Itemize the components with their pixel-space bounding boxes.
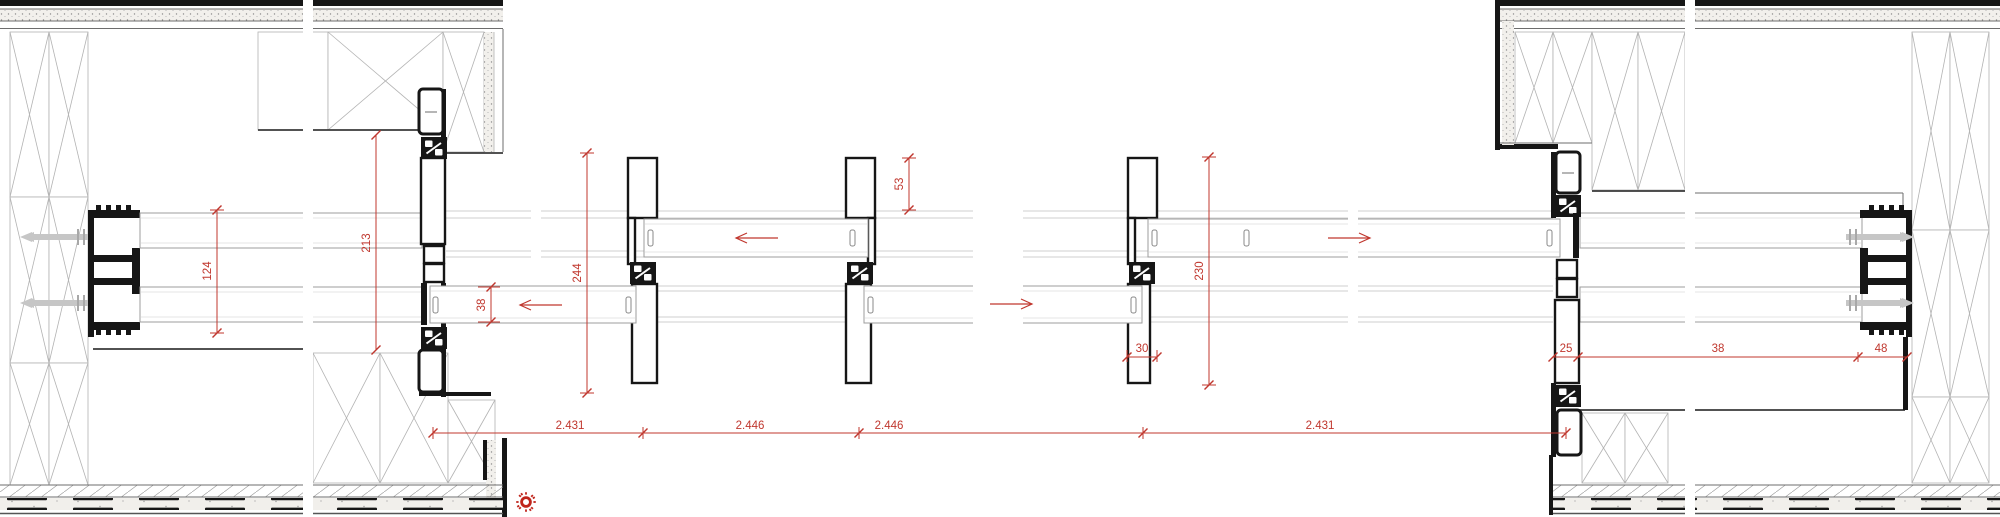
dimension-230: 230 bbox=[1194, 153, 1216, 390]
wall-upper-left bbox=[258, 29, 503, 153]
dim-label-213: 213 bbox=[361, 233, 373, 252]
sun-icon bbox=[516, 492, 536, 512]
section-break-right bbox=[1685, 0, 1695, 517]
fixing-screw-icon bbox=[1846, 295, 1914, 311]
dim-label-244: 244 bbox=[572, 263, 584, 283]
dim-label-48: 48 bbox=[1875, 343, 1888, 355]
chain-label-2: 2.446 bbox=[736, 420, 765, 432]
chain-label-1: 2.431 bbox=[556, 420, 585, 432]
dimension-chain-right: 25 38 48 bbox=[1549, 343, 1912, 362]
dim-label-53: 53 bbox=[894, 178, 906, 191]
fixed-glass-left bbox=[140, 213, 422, 322]
fixing-screw-icon bbox=[1846, 229, 1914, 245]
dimension-244: 244 bbox=[572, 149, 594, 398]
dimension-53: 53 bbox=[894, 154, 916, 215]
mullion-right bbox=[1551, 152, 1581, 457]
section-break-left bbox=[303, 0, 313, 517]
drawing-canvas: 124 213 38 244 53 230 30 bbox=[0, 0, 2000, 517]
dim-label-230: 230 bbox=[1194, 261, 1206, 280]
ceiling-left bbox=[0, 0, 503, 29]
interlock-profile-2 bbox=[846, 158, 875, 383]
section-break-small bbox=[531, 205, 541, 267]
section-break-small bbox=[1348, 205, 1358, 335]
chain-label-4: 2.431 bbox=[1306, 420, 1335, 432]
section-break-center bbox=[973, 205, 1023, 335]
chain-label-3: 2.446 bbox=[875, 420, 904, 432]
fixed-glass-right bbox=[1580, 213, 1862, 322]
dim-label-124: 124 bbox=[202, 261, 214, 281]
wall-left-column bbox=[10, 32, 88, 485]
dimension-chain-bottom: 2.431 2.446 2.446 2.431 bbox=[429, 420, 1571, 439]
floor-left bbox=[0, 485, 503, 514]
dim-label-25: 25 bbox=[1560, 343, 1573, 355]
dim-label-38-right: 38 bbox=[1712, 343, 1725, 355]
facade-section-drawing: 124 213 38 244 53 230 30 bbox=[0, 0, 2000, 517]
wall-right-column bbox=[1912, 32, 1989, 483]
interlock-profile-1 bbox=[628, 158, 657, 383]
dim-label-38: 38 bbox=[476, 299, 488, 312]
dim-label-30: 30 bbox=[1136, 343, 1149, 355]
